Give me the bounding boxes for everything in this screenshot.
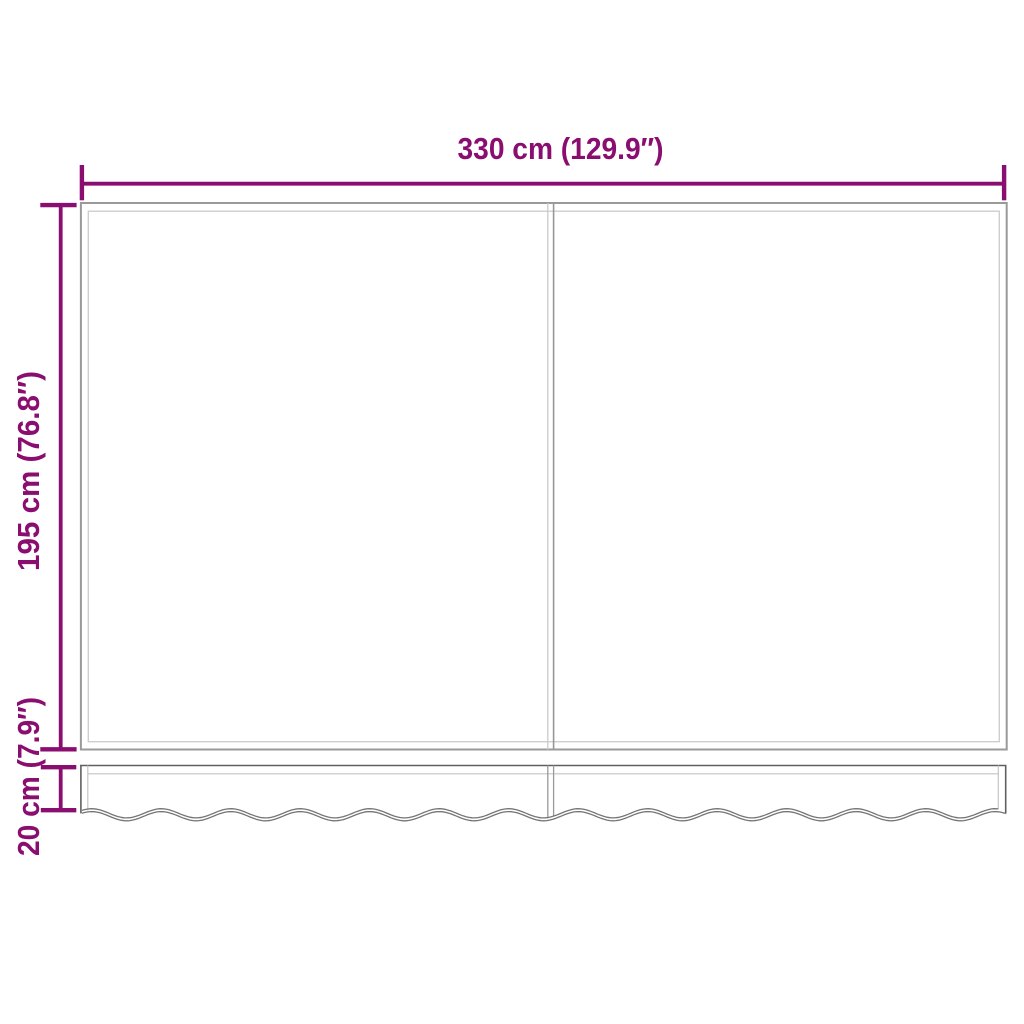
svg-text:195 cm (76.8″): 195 cm (76.8″) xyxy=(11,371,46,571)
svg-text:330 cm (129.9″): 330 cm (129.9″) xyxy=(458,131,664,166)
svg-text:20 cm (7.9″): 20 cm (7.9″) xyxy=(11,697,46,856)
